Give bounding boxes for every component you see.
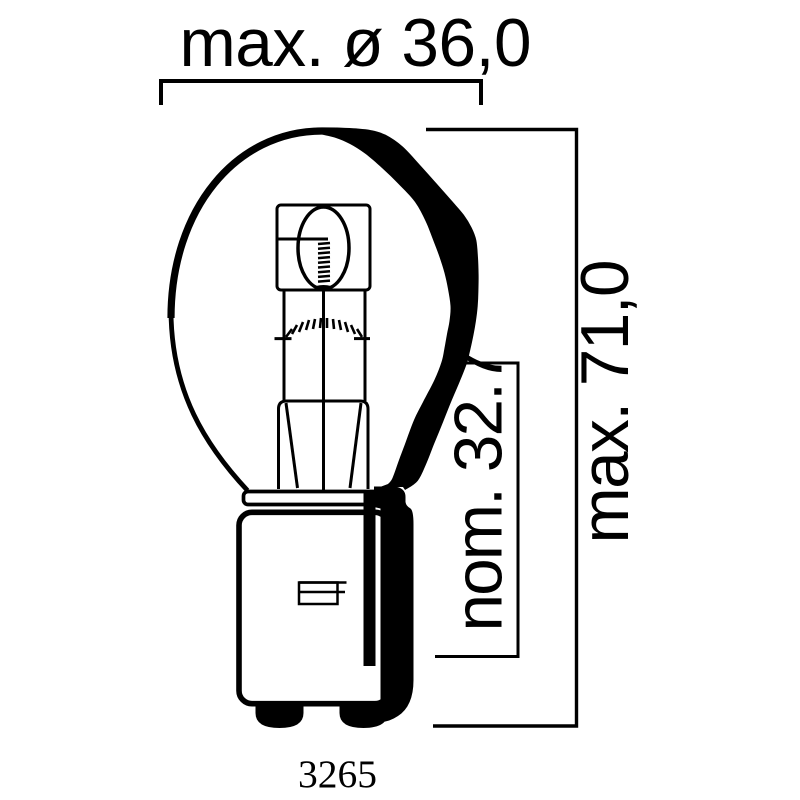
svg-text:3265: 3265 xyxy=(298,752,377,796)
svg-text:max. ø 36,0: max. ø 36,0 xyxy=(180,6,532,81)
svg-text:max. 71,0: max. 71,0 xyxy=(568,260,643,544)
